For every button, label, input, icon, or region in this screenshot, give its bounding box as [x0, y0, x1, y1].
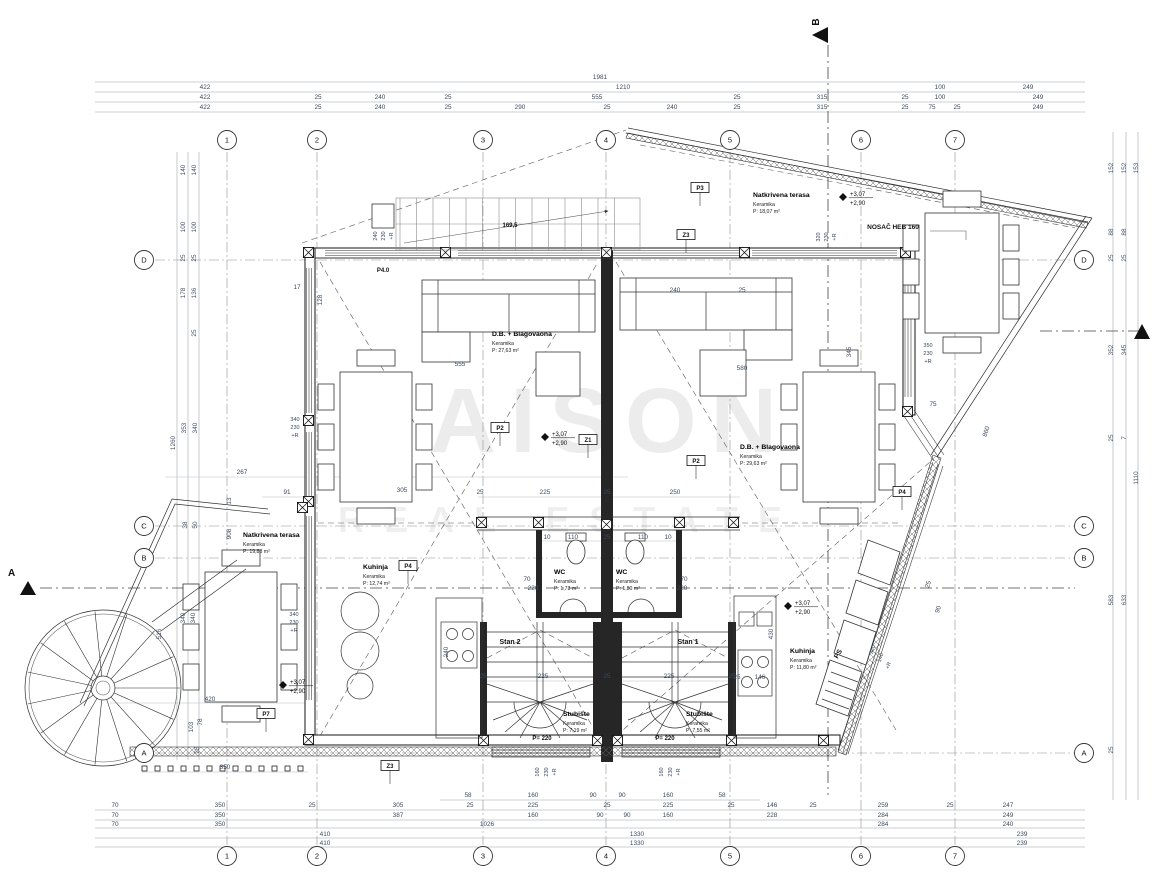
grid-bubble-row-B-label: B	[141, 554, 146, 563]
dim-text: 1330	[630, 840, 645, 847]
dim-text: 555	[592, 94, 603, 101]
dim-text: 305	[393, 802, 404, 809]
grid-bubble-col-6-label: 6	[859, 136, 863, 145]
grid-bubble-col-7-label: 7	[953, 852, 957, 861]
level-marker-symbol	[784, 602, 792, 610]
dim-text: 25	[1108, 254, 1115, 262]
dim-text: +R	[290, 628, 297, 634]
room-name: Stubište	[686, 711, 713, 718]
dim-text: 70	[523, 576, 531, 583]
room-material: Keramika	[243, 542, 265, 548]
dim-text: 350	[923, 343, 932, 349]
dim-text: 240	[375, 104, 386, 111]
spiral-tread	[95, 700, 102, 765]
dim-text: 860	[982, 425, 992, 438]
dim-text: 1330	[630, 831, 645, 838]
dim-text: 178	[180, 287, 187, 298]
dim-text: 290	[515, 104, 526, 111]
dim-text: 240	[373, 231, 379, 240]
section-marker-A: A	[8, 568, 36, 595]
dim-text: 555	[455, 361, 466, 368]
dim-text: 160	[535, 767, 541, 776]
baluster-post	[246, 766, 251, 771]
annotation-label: Stan 2	[499, 639, 520, 646]
dim-text: 350	[215, 812, 226, 819]
dim-text: 70	[111, 802, 119, 809]
dim-text: 1981	[593, 74, 608, 81]
room-area: P: 12,74 m²	[363, 581, 390, 587]
level-lower: +2,90	[850, 201, 866, 207]
dim-text: 25	[308, 802, 316, 809]
dim-text: 247	[1003, 802, 1014, 809]
dim-text: 13	[226, 497, 233, 505]
key-label-text: P3	[696, 186, 704, 192]
dim-text: 345	[846, 346, 853, 357]
room-name: Natkrivena terasa	[753, 192, 810, 199]
dim-text: 90	[589, 792, 597, 799]
dim-text: 340	[289, 612, 298, 618]
floor-plan-page: MAISON REAL ESTATE	[0, 0, 1155, 882]
room-name: Kuhinja	[790, 648, 815, 655]
dim-text: +R	[676, 768, 682, 775]
dim-text: 230	[824, 232, 830, 241]
grid-bubble-row-D-label: D	[141, 256, 147, 265]
level-upper: +3,07	[850, 192, 866, 198]
room-material: Keramika	[616, 579, 638, 585]
baluster-post	[285, 766, 290, 771]
room-area: P: 27,63 m²	[492, 348, 519, 354]
baluster-post	[259, 766, 264, 771]
dim-text: 353	[181, 422, 188, 433]
dim-text: 10	[543, 534, 551, 541]
dim-text: 420	[205, 696, 216, 703]
dim-text: 249	[1003, 812, 1014, 819]
key-label-text: Z1	[584, 438, 592, 444]
dim-text: 422	[200, 104, 211, 111]
dim-text: 250	[670, 489, 681, 496]
dim-text: 225	[538, 673, 549, 680]
room-name: Natkrivena terasa	[243, 532, 300, 539]
dim-text: 633	[1121, 594, 1128, 605]
dining-set-right-unit	[781, 350, 895, 524]
dim-text: 25	[809, 802, 817, 809]
dim-text: 228	[767, 812, 778, 819]
dim-text: 25	[738, 287, 746, 294]
dim-text: 422	[200, 84, 211, 91]
key-label-text: P7	[262, 712, 270, 718]
baluster-post	[194, 766, 199, 771]
sink-right	[628, 599, 654, 612]
dim-text: 25	[314, 104, 322, 111]
section-marker-B: B	[811, 18, 828, 43]
grid-bubble-row-C-label: C	[1081, 522, 1087, 531]
dim-text: 100	[180, 221, 187, 232]
dim-text: 25	[314, 94, 322, 101]
dim-text: 136	[191, 287, 198, 298]
dim-text: 352	[1108, 344, 1115, 355]
dim-text: 239	[1017, 840, 1028, 847]
baluster-post	[207, 766, 212, 771]
grid-bubble-col-6-label: 6	[859, 852, 863, 861]
dim-text: 38	[182, 521, 189, 529]
dim-text: 100	[191, 221, 198, 232]
dim-text: 25	[444, 94, 452, 101]
baluster-post	[181, 766, 186, 771]
dim-text: 100	[935, 94, 946, 101]
dim-text: 7	[1121, 436, 1128, 440]
dim-text: 25	[1108, 746, 1115, 754]
dim-text: 340	[190, 612, 197, 623]
dim-text: 90	[596, 812, 604, 819]
key-label-text: Z3	[682, 233, 690, 239]
dim-text: 160	[659, 767, 665, 776]
dim-text: 230	[544, 767, 550, 776]
dim-text: 25	[444, 104, 452, 111]
dim-text: 25	[603, 104, 611, 111]
room-area: P: 1,73 m²	[554, 586, 578, 592]
level-upper: +3,07	[552, 432, 568, 438]
grid-bubble-col-5-label: 5	[728, 852, 732, 861]
annotation-label: 169,5	[502, 223, 518, 229]
section-letter-left: A	[8, 568, 15, 579]
room-name: WC	[616, 569, 627, 576]
grid-bubble-col-5-label: 5	[728, 136, 732, 145]
dim-text: 387	[393, 812, 404, 819]
room-name: WC	[554, 569, 565, 576]
dim-text: 25	[603, 489, 611, 496]
room-material: Keramika	[686, 721, 708, 727]
dim-text: 25	[466, 802, 474, 809]
dim-text: 25	[901, 104, 909, 111]
level-upper: +3,07	[795, 601, 811, 607]
party-wall	[601, 250, 613, 762]
dim-text: 1260	[170, 435, 177, 450]
sofa-right-unit	[620, 278, 792, 360]
dim-text: 580	[737, 365, 748, 372]
dim-text: 70	[111, 821, 119, 828]
dim-text: 25	[1121, 254, 1128, 262]
grid-bubble-row-C-label: C	[141, 522, 147, 531]
dim-text: 128	[317, 294, 324, 305]
grid-bubble-col-2-label: 2	[315, 852, 319, 861]
dim-text: 25	[191, 329, 198, 337]
spiral-tread	[111, 697, 154, 745]
level-lower: +2,90	[552, 441, 568, 447]
dim-text: 230	[289, 620, 298, 626]
dim-text: 110	[638, 534, 649, 541]
dim-text: 410	[320, 831, 331, 838]
dim-text: 25	[733, 94, 741, 101]
room-material: Keramika	[790, 658, 812, 664]
dining-set-left-terrace	[183, 550, 297, 722]
dim-text: 75	[929, 401, 937, 408]
dim-text: 100	[935, 84, 946, 91]
dim-text: 267	[237, 469, 248, 476]
key-label-text: P4	[898, 490, 906, 496]
dim-text: 350	[215, 802, 226, 809]
room-area: P: 7,19 m²	[563, 728, 587, 734]
section-arrow-right	[1134, 324, 1150, 339]
dim-text: 78	[197, 718, 204, 726]
stove-right	[738, 650, 772, 696]
kitchen-left	[341, 592, 482, 738]
sink-left	[560, 599, 586, 612]
spiral-tread	[28, 690, 92, 704]
grid-bubble-col-1-label: 1	[225, 852, 229, 861]
spiral-tread	[41, 695, 94, 733]
dim-text: 410	[320, 840, 331, 847]
dim-text: 1110	[1133, 471, 1140, 485]
key-label-text: P4	[404, 564, 412, 570]
spiral-tread	[114, 693, 173, 719]
room-material: Keramika	[753, 202, 775, 208]
room-material: Keramika	[492, 341, 514, 347]
dim-text: 140	[180, 164, 187, 175]
dim-text: 320	[816, 232, 822, 241]
annotation-label: P= 220	[655, 736, 675, 742]
dim-text: 315	[817, 94, 828, 101]
level-marker-symbol	[839, 193, 847, 201]
dim-text: +R	[552, 768, 558, 775]
side-table-right	[700, 350, 746, 396]
dim-text: 240	[670, 287, 681, 294]
room-material: Keramika	[554, 579, 576, 585]
dining-set-top-terrace	[903, 191, 1019, 353]
dim-text: 350	[215, 821, 226, 828]
grid-bubble-col-4-label: 4	[604, 136, 608, 145]
grid-bubble-row-A-label: A	[141, 749, 146, 758]
dim-text: 25	[946, 802, 954, 809]
spiral-tread	[107, 699, 127, 761]
spiral-tread	[41, 643, 94, 681]
dim-text: 249	[1033, 94, 1044, 101]
dim-text: 350	[220, 764, 231, 771]
room-material: Keramika	[363, 574, 385, 580]
dim-text: +R	[389, 232, 395, 239]
dim-text: 153	[1133, 162, 1140, 173]
spiral-tread	[65, 621, 98, 677]
dim-text: 430	[768, 628, 775, 639]
grid-bubble-col-3-label: 3	[481, 852, 485, 861]
dim-text: 25	[901, 94, 909, 101]
dim-text: 259	[878, 802, 889, 809]
baluster-post	[155, 766, 160, 771]
room-area: P: 29,63 m²	[740, 461, 767, 467]
stove-left	[441, 622, 477, 668]
dim-text: 110	[568, 534, 579, 541]
paving-strip	[130, 747, 836, 756]
room-area: P: 1,80 m²	[616, 586, 640, 592]
dim-text: 146	[767, 802, 778, 809]
dim-text: 25	[1108, 434, 1115, 442]
dim-text: 240	[1003, 821, 1014, 828]
grid-bubble-col-2-label: 2	[315, 136, 319, 145]
grid-bubble-col-3-label: 3	[481, 136, 485, 145]
dim-text: 340	[192, 422, 199, 433]
dim-text: 230	[923, 351, 932, 357]
room-area: P: 18,07 m²	[753, 209, 780, 215]
dim-text: 160	[663, 812, 674, 819]
side-table-left	[536, 352, 580, 396]
room-area: P: 19,88 m²	[243, 549, 270, 555]
room-name: Stubište	[563, 711, 590, 718]
key-label-text: P2	[496, 426, 504, 432]
baluster-post	[142, 766, 147, 771]
dim-text: 240	[443, 646, 450, 657]
dim-text: 240	[375, 94, 386, 101]
dim-text: 10	[664, 534, 672, 541]
dim-text: 230	[381, 231, 387, 240]
floor-plan-drawing: MAISON REAL ESTATE	[0, 0, 1155, 882]
room-area: P: 11,80 m²	[790, 665, 817, 671]
dim-text: 25	[924, 580, 933, 589]
dim-text: 160	[663, 792, 674, 799]
dim-text: 1026	[480, 821, 495, 828]
dim-text: 1210	[616, 84, 631, 91]
dim-text: 146	[755, 674, 766, 681]
dim-text: 225	[540, 489, 551, 496]
annotation-label: P= 220	[532, 736, 552, 742]
dim-text: 345	[1121, 344, 1128, 355]
dim-text: 583	[1108, 594, 1115, 605]
dim-text: +R	[291, 433, 298, 439]
dim-text: 249	[1023, 84, 1034, 91]
dim-text: 340	[290, 417, 299, 423]
dim-text: 90	[934, 605, 943, 614]
level-upper: +3,07	[290, 680, 306, 686]
spiral-tread	[107, 615, 127, 677]
dim-text: 315	[817, 104, 828, 111]
dim-text: 25	[476, 489, 484, 496]
dim-text: 305	[397, 487, 408, 494]
dim-text: 160	[528, 812, 539, 819]
dim-text: 25	[733, 104, 741, 111]
dim-text: 220	[528, 585, 539, 592]
key-label-text: Z3	[386, 764, 394, 770]
dim-text: 58	[464, 792, 472, 799]
dim-text: 422	[200, 94, 211, 101]
dim-text: 70	[680, 576, 688, 583]
spiral-tread	[65, 698, 98, 754]
room-name: D.B. + Blagovaona	[740, 444, 800, 451]
baluster-post	[298, 766, 303, 771]
grid-bubble-col-7-label: 7	[953, 136, 957, 145]
grid-bubble-col-1-label: 1	[225, 136, 229, 145]
room-area: P: 7,55 m²	[686, 728, 710, 734]
room-name: D.B. + Blagovaona	[492, 331, 552, 338]
baluster-post	[233, 766, 238, 771]
annotation-label: Stan 1	[677, 639, 698, 646]
dim-text: 225	[528, 802, 539, 809]
annotation-label: NOSAČ HEB 160	[867, 222, 919, 231]
dim-text: 25	[191, 254, 198, 262]
dim-text: +R	[885, 661, 893, 670]
dim-text: 58	[718, 792, 726, 799]
dim-text: 516	[156, 628, 163, 639]
dim-text: 17	[293, 284, 301, 291]
dim-text: 284	[878, 812, 889, 819]
dim-text: 88	[1121, 228, 1128, 236]
grid-bubble-row-D-label: D	[1081, 256, 1087, 265]
dim-text: 239	[1017, 831, 1028, 838]
dim-text: 220	[677, 585, 688, 592]
section-letter-top: B	[811, 18, 822, 25]
room-material: Keramika	[740, 454, 762, 460]
dim-text: 225	[664, 673, 675, 680]
spiral-tread	[95, 611, 102, 676]
dim-text: 249	[1033, 104, 1044, 111]
dim-text: 25	[479, 673, 487, 680]
dim-text: 140	[191, 164, 198, 175]
room-name: Kuhinja	[363, 564, 388, 571]
baluster-post	[168, 766, 173, 771]
dim-text: +R	[924, 359, 931, 365]
dim-text: 91	[283, 489, 291, 496]
dim-text: 25	[194, 746, 201, 754]
dim-text: 25	[180, 254, 187, 262]
room-material: Keramika	[563, 721, 585, 727]
dim-text: 88	[1108, 228, 1115, 236]
dim-text: 225	[663, 802, 674, 809]
level-lower: +2,90	[795, 610, 811, 616]
annotation-label: P4.0	[377, 268, 390, 274]
dim-text: 25	[953, 104, 961, 111]
dim-text: 152	[1108, 162, 1115, 173]
grid-bubble-row-A-label: A	[1081, 749, 1086, 758]
baluster-post	[272, 766, 277, 771]
dim-text: 25	[727, 802, 735, 809]
dim-text: 160	[528, 792, 539, 799]
level-lower: +2,90	[290, 689, 306, 695]
dim-text: 25	[733, 674, 741, 681]
dim-text: 75	[928, 104, 936, 111]
dim-text: 50	[192, 521, 199, 529]
dim-text: 103	[188, 721, 195, 732]
spiral-tread	[28, 672, 92, 686]
dim-text: 340	[180, 612, 187, 623]
dim-text: 90	[623, 812, 631, 819]
dim-text: 284	[878, 821, 889, 828]
dim-text: 70	[111, 812, 119, 819]
grid-bubble-col-4-label: 4	[604, 852, 608, 861]
dim-text: 240	[667, 104, 678, 111]
dim-text: 230	[668, 767, 674, 776]
spiral-tread	[111, 631, 154, 679]
dim-text: 152	[1121, 162, 1128, 173]
dim-text: 25	[603, 534, 611, 541]
dim-text: 25	[603, 802, 611, 809]
spiral-tread	[114, 657, 173, 683]
dim-text: 25	[603, 673, 611, 680]
key-label-text: P2	[692, 459, 700, 465]
grid-bubble-row-B-label: B	[1081, 554, 1086, 563]
dim-text: 90	[618, 792, 626, 799]
dim-text: +R	[832, 233, 838, 240]
dim-text: 908	[226, 528, 233, 539]
stair-right	[622, 622, 728, 738]
dim-text: 230	[290, 425, 299, 431]
